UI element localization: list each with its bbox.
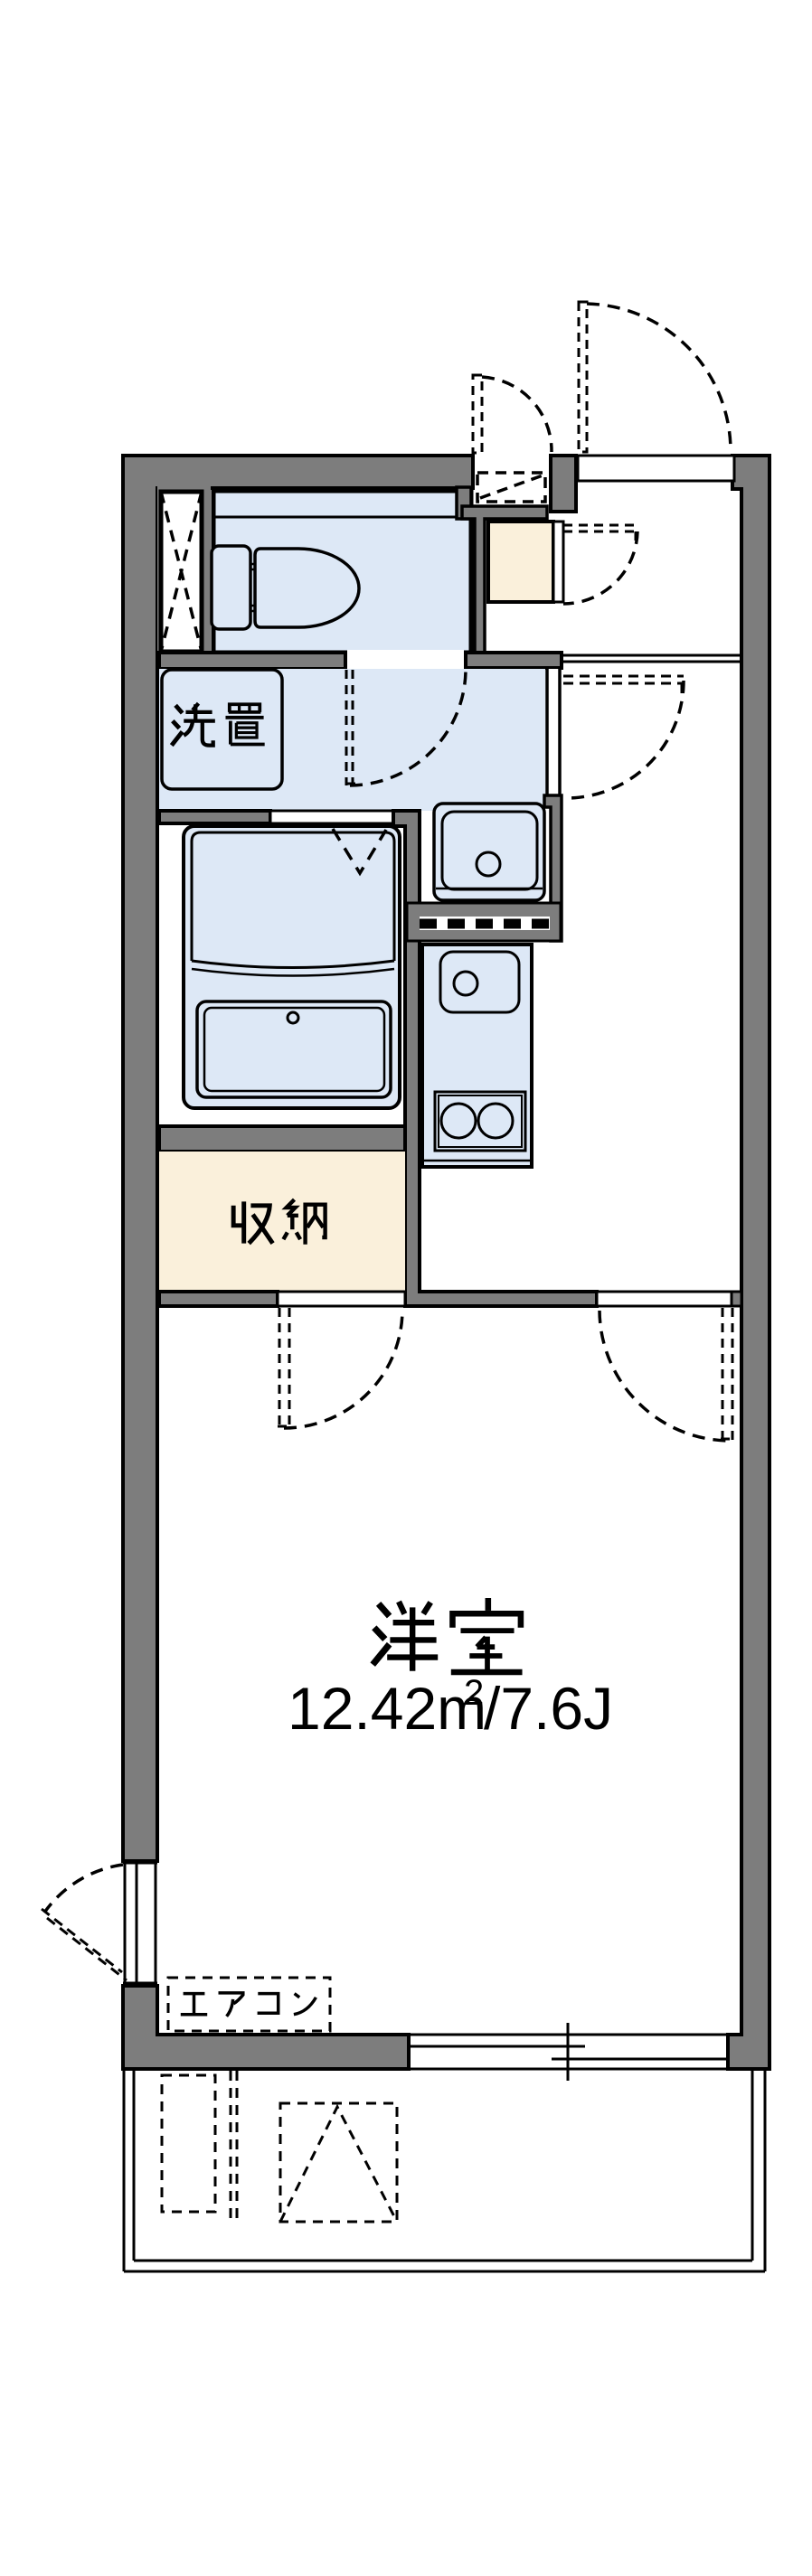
svg-text:12.42m: 12.42m xyxy=(288,1675,486,1742)
svg-text:2: 2 xyxy=(464,1673,484,1713)
svg-text:/7.6J: /7.6J xyxy=(484,1675,613,1742)
